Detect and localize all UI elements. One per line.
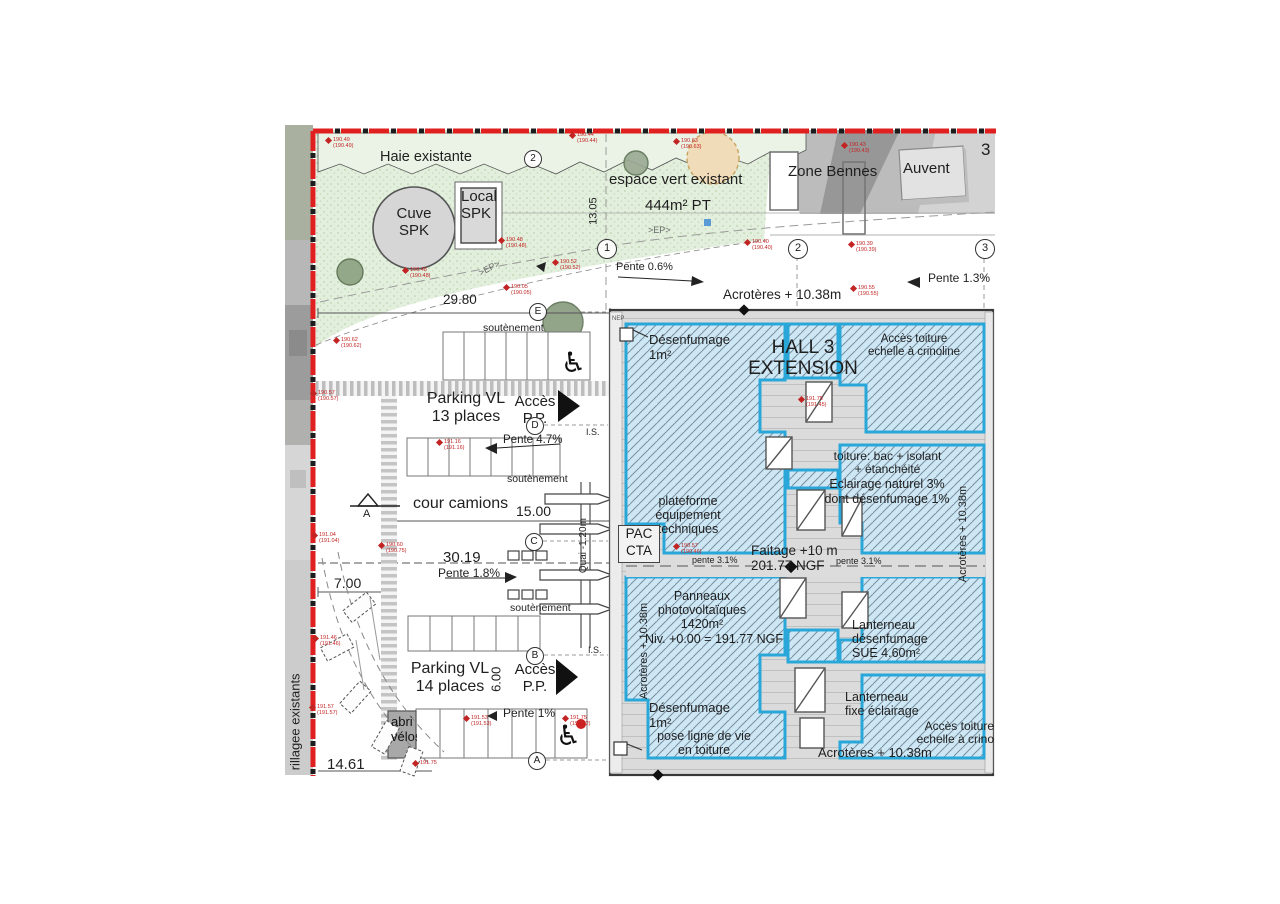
label-pente-1: Pente 1% [503, 707, 555, 720]
elevation-marker: 190.57(190.46) [681, 543, 702, 555]
elevation-marker: 191.75(191.72) [570, 715, 591, 727]
grid-circle-2-haie: 2 [524, 150, 542, 168]
elevation-marker: 191.53(191.53) [471, 715, 492, 727]
elevation-marker: 190.48(190.48) [506, 237, 527, 249]
dim-29-80: 29.80 [443, 292, 477, 307]
ep-node [704, 219, 711, 226]
label-plateforme: plateforme équipement techniques [650, 494, 726, 536]
label-acroteres-bottom: Acrotères + 10.38m [818, 746, 932, 761]
acces-arrow-bottom [554, 659, 580, 697]
label-acces-toiture-top: Accès toiture echelle à crinoline [855, 333, 973, 359]
label-niveau: Niv. +0.00 = 191.77 NGF [645, 632, 783, 646]
label-haie-existante: Haie existante [380, 149, 472, 165]
label-cuve-spk: Cuve SPK [388, 206, 440, 240]
label-soutenement-3: soutènement [510, 603, 571, 615]
label-desenfumage-top: Désenfumage 1m² [649, 333, 730, 362]
grid-circle-3: 3 [975, 239, 995, 259]
label-pente-13: Pente 1.3% [928, 272, 990, 285]
label-espace-vert-area: 444m² PT [645, 198, 711, 215]
elevation-marker: 190.55(190.55) [858, 285, 879, 297]
label-pente-31-left: pente 3.1% [692, 555, 738, 565]
pac-cta-box: PAC CTA [618, 525, 660, 563]
svg-text:♿: ♿ [561, 346, 586, 379]
elevation-marker: 190.49(190.49) [333, 137, 354, 149]
label-espace-vert: espace vert existant [609, 172, 742, 189]
label-lanterneau-desenfumage: Lanterneau désenfumage SUE 4.60m² [852, 618, 928, 660]
grid-circle-d: D [526, 417, 544, 435]
dim-14-61: 14.61 [327, 757, 365, 774]
dim-7-00: 7.00 [334, 576, 361, 592]
site-plan-page: { "site": { "haie": "Haie existante", "e… [0, 0, 1280, 904]
elevation-marker: 190.05(190.05) [511, 284, 532, 296]
label-panneaux: Panneaux photovoltaïques 1420m² [648, 589, 756, 631]
label-section-a: A [363, 508, 370, 520]
label-nep: NEP [612, 316, 624, 323]
grid-circle-c: C [525, 533, 543, 551]
site-plan-drawing: ♿ ♿ [0, 0, 1280, 904]
elevation-marker: 190.48(190.48) [410, 267, 431, 279]
handicap-icon-top: ♿ [561, 346, 586, 379]
elevation-marker: 190.60(190.75) [386, 542, 407, 554]
label-abri-velos: abri vélos [391, 715, 417, 744]
label-corner-3: 3 [981, 140, 990, 159]
label-cour-camions: cour camions [413, 495, 508, 513]
elevation-marker: 191.46(191.46) [320, 635, 341, 647]
label-ep-1: >EP> [648, 225, 671, 235]
label-parking-14: Parking VL 14 places [408, 660, 492, 696]
label-is-1: I.S. [586, 427, 600, 437]
elevation-marker: 191.57(191.57) [317, 704, 338, 716]
elevation-marker: 190.57(190.57) [318, 390, 339, 402]
elevation-marker: 190.62(190.62) [341, 337, 362, 349]
grid-circle-2: 2 [788, 239, 808, 259]
label-parking-13: Parking VL 13 places [422, 390, 510, 426]
dim-15-00: 15.00 [516, 504, 551, 520]
elevation-marker: 190.39(190.39) [856, 241, 877, 253]
elevation-marker: 191.75(191.45) [806, 396, 827, 408]
grid-circle-1: 1 [597, 239, 617, 259]
elevation-marker: 190.63(190.63) [681, 138, 702, 150]
label-lanterneau-fixe: Lanterneau fixe éclairage [845, 690, 919, 718]
dim-quai: Quai -1.20m [578, 518, 589, 573]
label-local-spk: Local SPK [461, 189, 497, 223]
elevation-marker: 191.16(191.16) [444, 439, 465, 451]
label-pente-18: Pente 1.8% [438, 567, 500, 580]
label-acroteres-left: Acrotères + 10.38m [638, 581, 650, 699]
label-acces-pp-bottom: Accès P.P. [514, 662, 556, 696]
label-grillage-existant: rillagee existants [289, 650, 304, 770]
elevation-marker: 191.75 [420, 760, 437, 766]
label-acces-toiture-bottom: Accès toiture echelle à crino [888, 720, 994, 747]
label-acroteres-top: Acrotères + 10.38m [723, 287, 841, 302]
label-pente-06: Pente 0.6% [616, 261, 673, 273]
label-acroteres-right: Acrotères + 10.38m [957, 464, 969, 582]
grid-circle-e: E [529, 303, 547, 321]
label-pose-ligne-vie: pose ligne de vie en toiture [645, 729, 763, 757]
dim-13-05: 13.05 [588, 197, 600, 225]
label-auvent: Auvent [903, 161, 950, 178]
label-soutenement-2: soutènement [507, 474, 568, 486]
label-toiture-bac: toiture: bac + isolant + étanchéité [815, 450, 960, 477]
label-dont-desenfumage: dont désenfumage 1% [813, 492, 961, 506]
label-soutenement-1: soutènement [483, 323, 544, 335]
elevation-marker: 190.44(190.44) [577, 132, 598, 144]
elevation-marker: 190.43(190.43) [849, 142, 870, 154]
grid-circle-a: A [528, 752, 546, 770]
label-faitage: Faitage +10 m 201.77 NGF [751, 543, 838, 573]
elevation-marker: 190.40(190.40) [752, 239, 773, 251]
label-pente-47: Pente 4.7% [503, 434, 562, 447]
dim-30-19: 30.19 [443, 550, 481, 567]
label-zone-bennes: Zone Bennes [788, 164, 877, 181]
elevation-marker: 190.52(190.52) [560, 259, 581, 271]
label-desenfumage-bottom: Désenfumage 1m² [649, 701, 730, 730]
acces-arrow-top [556, 390, 582, 424]
label-pente-31-right: pente 3.1% [836, 556, 882, 566]
label-eclairage: Eclairage naturel 3% [813, 477, 961, 491]
label-is-2: I.S. [588, 645, 602, 655]
dim-6-00: 6.00 [489, 667, 504, 692]
elevation-marker: 191.04(191.04) [319, 532, 340, 544]
